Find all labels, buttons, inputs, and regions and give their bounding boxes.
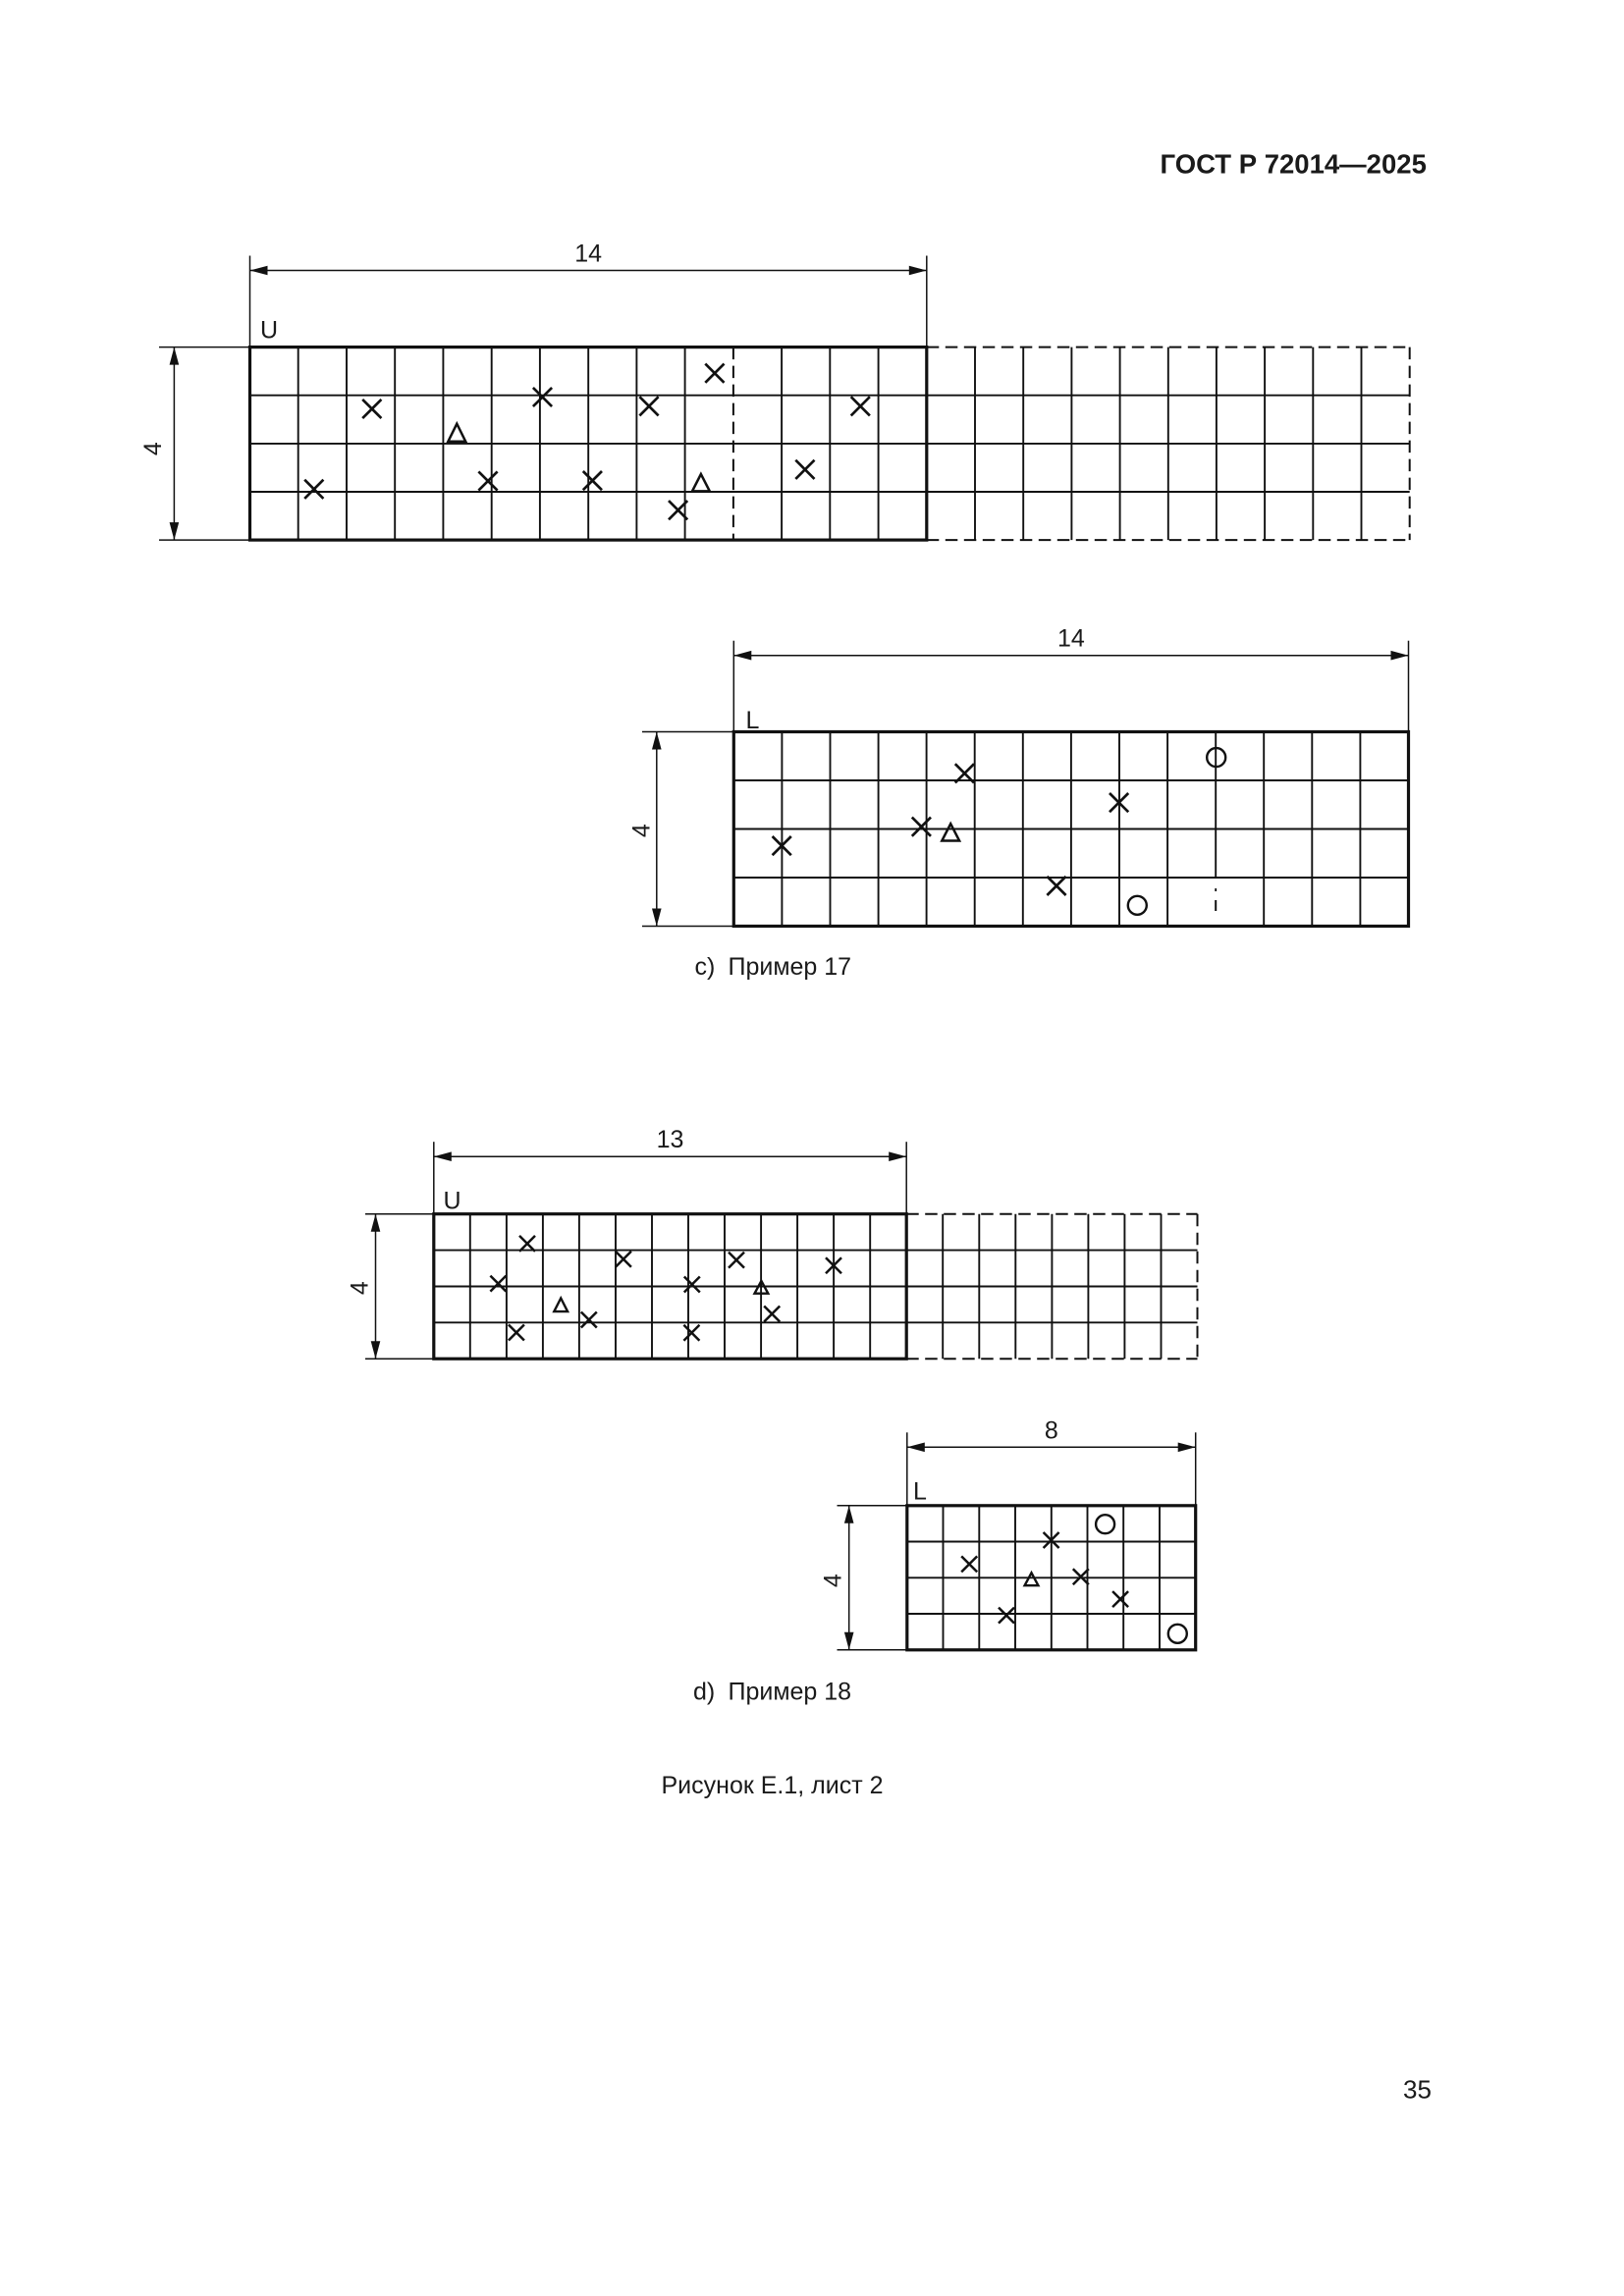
svg-text:Пример 18: Пример 18 (729, 1679, 852, 1706)
svg-text:U: U (444, 1188, 461, 1215)
svg-text:Рисунок Е.1, лист 2: Рисунок Е.1, лист 2 (662, 1772, 884, 1799)
svg-text:4: 4 (139, 442, 167, 455)
svg-text:4: 4 (347, 1281, 374, 1295)
svg-text:14: 14 (574, 240, 602, 268)
svg-text:13: 13 (657, 1126, 684, 1153)
svg-text:Пример 17: Пример 17 (729, 953, 852, 981)
svg-text:4: 4 (820, 1574, 847, 1587)
svg-text:14: 14 (1057, 625, 1085, 653)
svg-text:35: 35 (1403, 2075, 1432, 2105)
svg-text:U: U (260, 317, 278, 345)
svg-text:d): d) (693, 1679, 715, 1706)
svg-text:8: 8 (1045, 1416, 1058, 1444)
svg-text:c): c) (695, 953, 716, 981)
svg-text:4: 4 (628, 824, 656, 837)
svg-text:L: L (913, 1478, 927, 1506)
svg-text:ГОСТ Р 72014—2025: ГОСТ Р 72014—2025 (1161, 148, 1427, 179)
svg-text:L: L (746, 707, 760, 734)
